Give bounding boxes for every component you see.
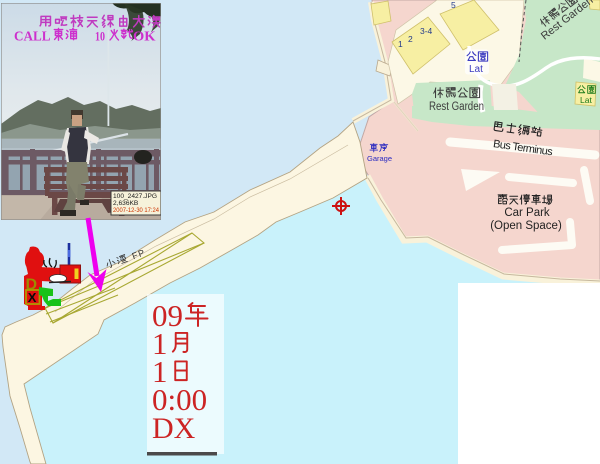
svg-text:OK: OK (133, 30, 156, 45)
svg-text:3-4: 3-4 (420, 26, 433, 36)
svg-text:Lat: Lat (580, 95, 592, 105)
svg-text:(Open Space): (Open Space) (490, 220, 562, 232)
svg-text:5: 5 (451, 0, 456, 10)
svg-text:X: X (28, 290, 37, 305)
svg-text:Car Park: Car Park (504, 207, 550, 219)
svg-text:CALL: CALL (14, 30, 51, 45)
svg-text:1: 1 (398, 39, 403, 49)
svg-text:2,636KB: 2,636KB (113, 200, 139, 207)
svg-text:Rest Garden: Rest Garden (429, 101, 484, 113)
svg-text:2007-12-30 17:24: 2007-12-30 17:24 (113, 207, 159, 214)
svg-text:2: 2 (408, 34, 413, 44)
svg-text:DX: DX (152, 412, 196, 445)
svg-text:Garage: Garage (367, 154, 392, 163)
svg-text:10: 10 (95, 29, 105, 44)
svg-text:100_2427.JPG: 100_2427.JPG (113, 193, 157, 200)
svg-text:Lat: Lat (469, 64, 483, 75)
